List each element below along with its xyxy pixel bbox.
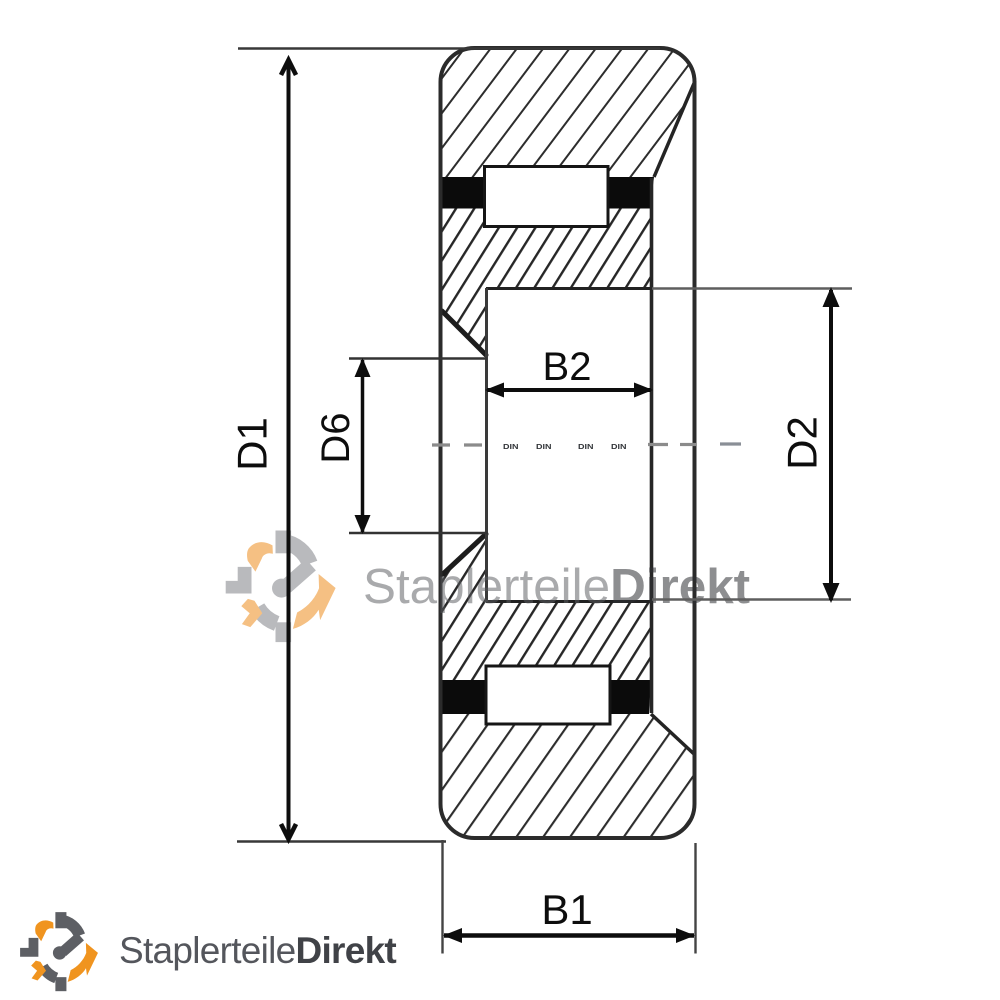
- svg-text:DIN: DIN: [578, 443, 594, 451]
- svg-text:DIN: DIN: [536, 443, 552, 451]
- svg-text:StaplerteileDirekt: StaplerteileDirekt: [363, 559, 750, 614]
- svg-text:DIN: DIN: [611, 443, 627, 451]
- svg-text:B1: B1: [541, 886, 592, 933]
- svg-text:D1: D1: [229, 417, 276, 471]
- svg-text:DIN: DIN: [503, 443, 519, 451]
- svg-text:D2: D2: [779, 416, 826, 470]
- svg-text:B2: B2: [543, 345, 592, 389]
- svg-text:StaplerteileDirekt: StaplerteileDirekt: [119, 930, 396, 971]
- svg-text:D6: D6: [314, 412, 358, 463]
